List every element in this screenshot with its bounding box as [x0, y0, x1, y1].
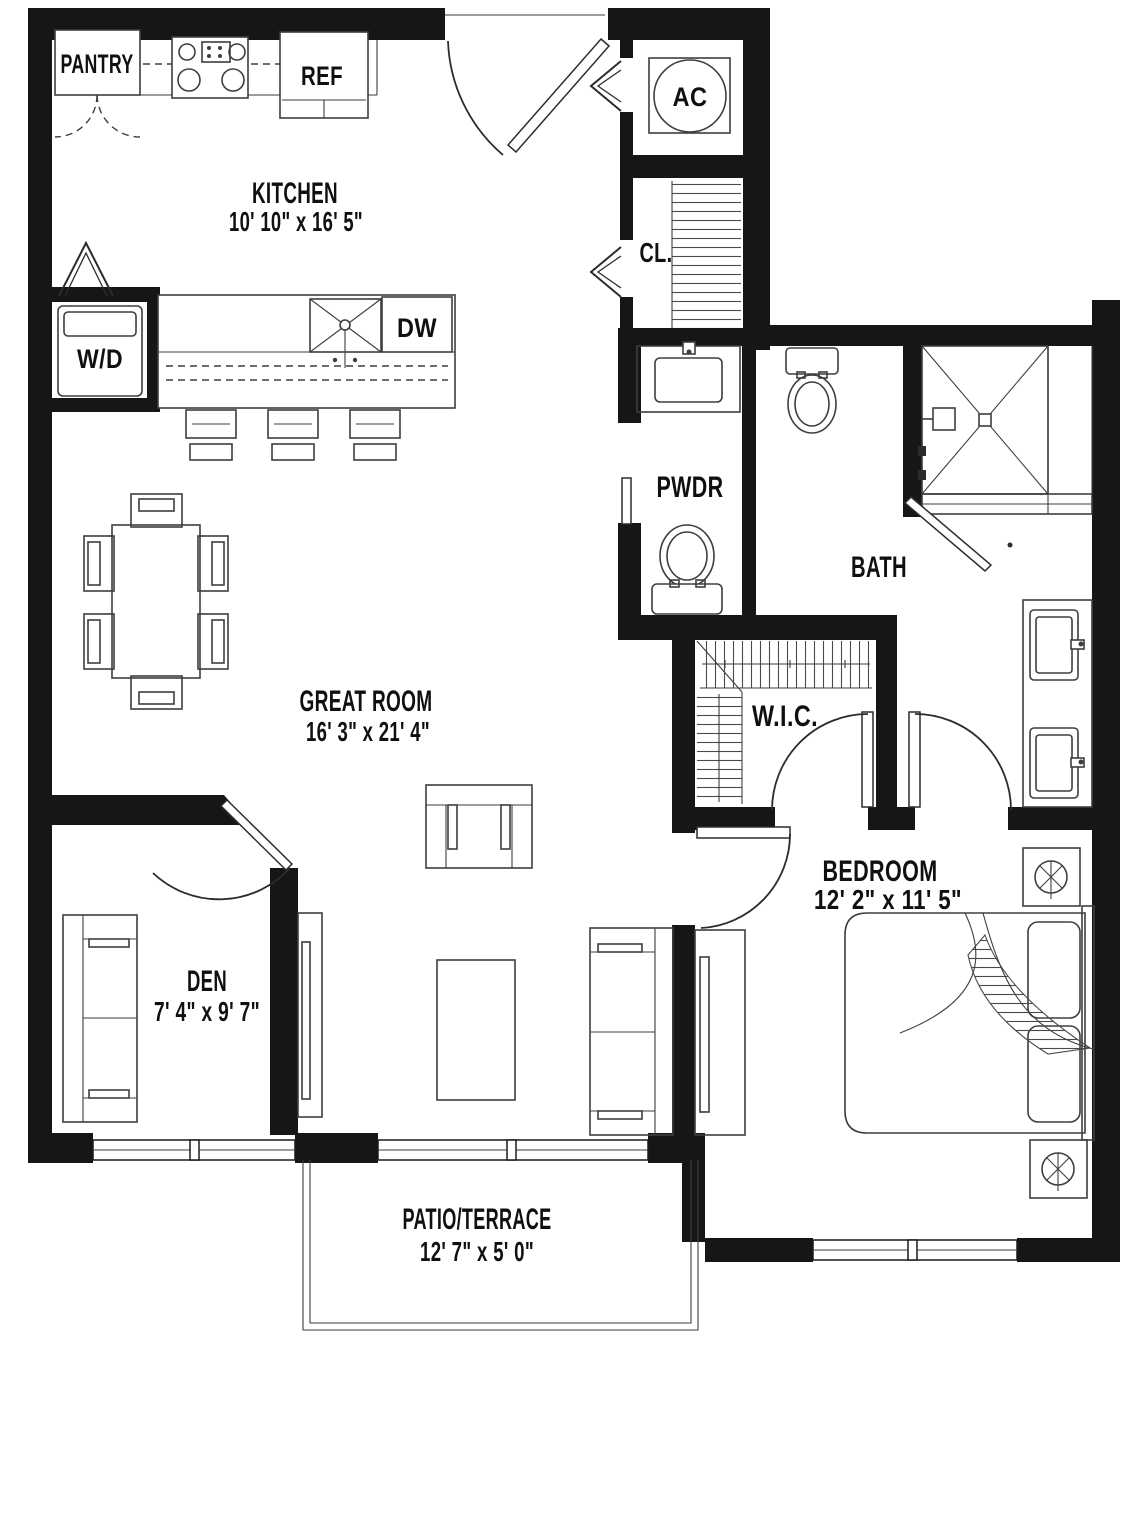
- wall-segment: [618, 615, 897, 640]
- wall-segment: [903, 346, 922, 517]
- wall-segment: [1092, 300, 1120, 1262]
- bedroom-window: [813, 1240, 1017, 1260]
- tv-console-icon: [298, 913, 322, 1117]
- walls: [28, 8, 1120, 1262]
- shower-head-icon: [933, 408, 955, 430]
- wall-segment: [742, 346, 756, 617]
- shower-icon: [905, 346, 1092, 571]
- wall-segment: [28, 1133, 93, 1163]
- great-room-dims: 16' 3" x 21' 4": [306, 716, 430, 747]
- shower-door: [905, 497, 991, 571]
- floor-plan-drawing: KITCHEN 10' 10" x 16' 5" GREAT ROOM 16' …: [0, 0, 1134, 1536]
- entry-door: [445, 15, 609, 155]
- dresser-icon: [695, 930, 745, 1135]
- bath-label: BATH: [851, 551, 907, 584]
- nightstand-lamp-icon: [1030, 1140, 1087, 1198]
- pwdr-pocket-door: [622, 478, 631, 524]
- wall-segment: [28, 398, 160, 412]
- bed-icon: [845, 906, 1094, 1140]
- armchair-icon: [426, 785, 532, 868]
- den-furniture: [63, 800, 292, 1122]
- sofa-icon: [590, 928, 673, 1135]
- wall-segment: [295, 1133, 378, 1163]
- kitchen-fixtures: [55, 30, 455, 460]
- wall-segment-den-top: [52, 795, 250, 825]
- nightstand-lamp-icon: [1023, 848, 1080, 906]
- stool-icon: [268, 410, 318, 460]
- stove-icon: [172, 37, 248, 98]
- floor-plan: KITCHEN 10' 10" x 16' 5" GREAT ROOM 16' …: [0, 0, 1134, 1536]
- dining-chair-icon: [84, 614, 114, 669]
- dining-chair-icon: [198, 536, 228, 591]
- wall-segment: [672, 925, 695, 1140]
- den-label: DEN: [187, 965, 227, 998]
- coffee-table-icon: [437, 960, 515, 1100]
- ac-closet: [591, 58, 730, 133]
- closet-label: CL.: [640, 237, 673, 268]
- stool-icon: [350, 410, 400, 460]
- wall-segment: [633, 155, 743, 178]
- pwdr-toilet-icon: [652, 525, 722, 614]
- wall-segment: [743, 325, 1092, 346]
- dw-label: DW: [397, 313, 437, 343]
- great-room-window: [378, 1140, 648, 1160]
- patio-dims: 12' 7" x 5' 0": [420, 1236, 534, 1267]
- stool-icon: [186, 410, 236, 460]
- wall-segment: [1008, 807, 1092, 830]
- pwdr-label: PWDR: [657, 471, 724, 504]
- bedroom-door: [697, 827, 790, 928]
- bedroom-dims: 12' 2" x 11' 5": [814, 884, 962, 915]
- wall-segment: [672, 640, 695, 833]
- dining-chair-icon: [84, 536, 114, 591]
- bathroom: [786, 346, 1092, 810]
- kitchen-dims: 10' 10" x 16' 5": [229, 206, 363, 237]
- dining-chair-icon: [131, 676, 182, 709]
- wall-segment: [705, 1238, 813, 1262]
- bar-stools: [186, 410, 400, 460]
- pwdr-vanity-sink-icon: [637, 342, 740, 412]
- bath-toilet-icon: [786, 348, 838, 433]
- dining-chair-icon: [198, 614, 228, 669]
- ref-label: REF: [301, 61, 343, 91]
- den-sofa-icon: [63, 915, 137, 1122]
- dining-table-icon: [84, 494, 228, 709]
- wall-segment: [743, 40, 770, 350]
- wall-segment: [620, 112, 633, 240]
- wall-segment: [682, 1163, 705, 1242]
- pantry-cabinet: [55, 30, 140, 137]
- wall-segment: [608, 8, 770, 40]
- wall-segment: [876, 615, 897, 830]
- windows: [93, 1140, 1017, 1260]
- kitchen-island: [158, 295, 455, 408]
- bath-door: [909, 543, 1013, 811]
- great-room-label: GREAT ROOM: [300, 685, 433, 718]
- wall-segment: [620, 40, 633, 58]
- patio-label: PATIO/TERRACE: [403, 1203, 552, 1236]
- dining-chair-icon: [131, 494, 182, 527]
- den-window: [93, 1140, 295, 1160]
- wall-segment: [618, 523, 641, 617]
- wall-segment: [270, 868, 298, 1135]
- wic-label: W.I.C.: [752, 700, 818, 733]
- den-dims: 7' 4" x 9' 7": [154, 996, 260, 1027]
- wall-segment: [28, 27, 52, 1133]
- wall-segment: [868, 807, 915, 830]
- bath-double-vanity-icon: [1023, 600, 1092, 807]
- wd-label: W/D: [77, 344, 123, 374]
- pantry-label: PANTRY: [61, 49, 134, 79]
- ac-label: AC: [673, 82, 708, 112]
